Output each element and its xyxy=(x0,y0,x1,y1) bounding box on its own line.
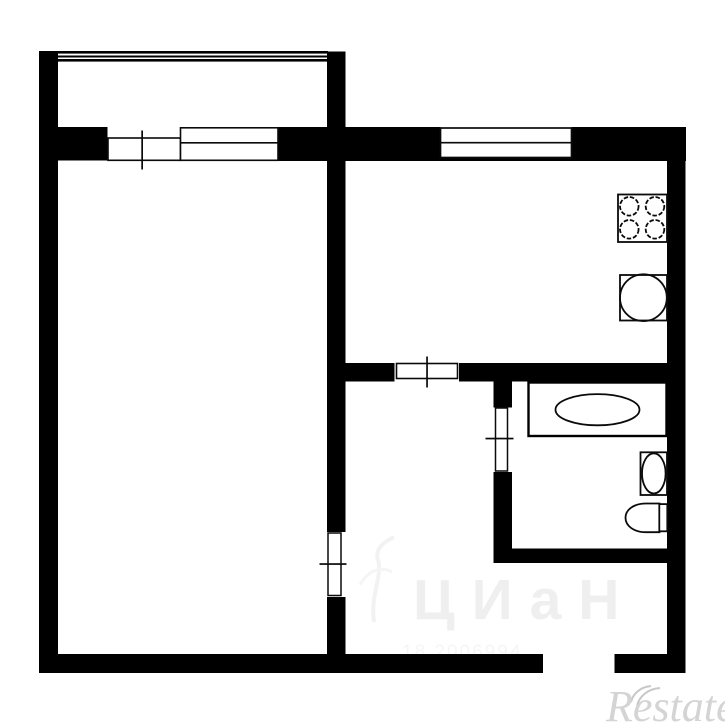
svg-text:ЦИаН: ЦИаН xyxy=(413,568,636,632)
svg-text:Restate: Restate xyxy=(605,682,725,725)
